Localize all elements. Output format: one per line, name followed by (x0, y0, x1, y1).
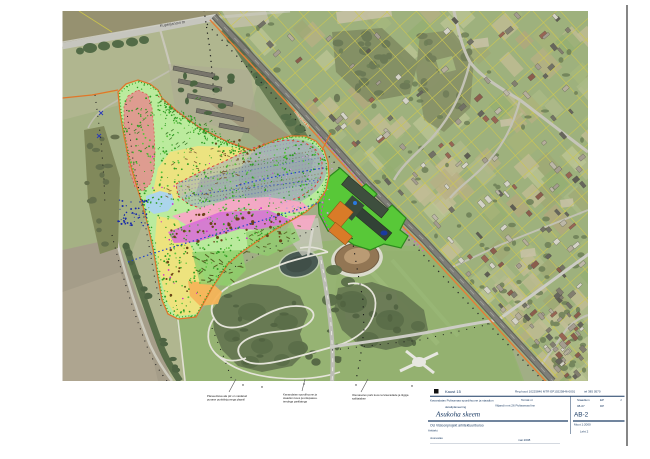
svg-text:08-07: 08-07 (577, 404, 585, 408)
svg-text:teedega parklatega: teedega parklatega (283, 400, 307, 404)
svg-text:tel 385 0570: tel 385 0570 (584, 390, 601, 394)
svg-text:detailplaneering: detailplaneering (445, 405, 467, 409)
svg-text:mai 2008: mai 2008 (518, 438, 531, 442)
svg-text:punase punktiirjoonega plaanil: punase punktiirjoonega plaanil (207, 398, 245, 402)
svg-text:Moot 1:2000: Moot 1:2000 (574, 423, 591, 427)
svg-text:DP: DP (600, 404, 604, 408)
svg-text:Kavandatav Poltsamaa spordihoo: Kavandatav Poltsamaa spordihoone ja staa… (430, 399, 494, 403)
svg-text:Leht 2: Leht 2 (580, 430, 589, 434)
svg-text:EP: EP (600, 398, 604, 402)
svg-text:Asukoha skeem: Asukoha skeem (435, 411, 480, 419)
svg-text:Kaust 15: Kaust 15 (445, 389, 462, 394)
svg-text:Joonestas: Joonestas (430, 436, 443, 440)
svg-text:Arhitekt: Arhitekt (428, 429, 438, 433)
svg-text:Viljandi mnt 26 Poltsamaa lin: Viljandi mnt 26 Poltsamaa linn (495, 404, 535, 408)
svg-text:Reg kood 10225846 MTR EP10225: Reg kood 10225846 MTR EP10225846-0001 (515, 390, 576, 394)
svg-text:sailitatakse: sailitatakse (352, 397, 366, 401)
svg-text:Staadium: Staadium (577, 398, 590, 402)
svg-text:Toimik nr: Toimik nr (521, 398, 533, 402)
svg-text:AB-2: AB-2 (574, 412, 589, 419)
svg-text:OU Visioonprojekt arhitektuuri: OU Visioonprojekt arhitektuuriburoo (430, 424, 484, 428)
